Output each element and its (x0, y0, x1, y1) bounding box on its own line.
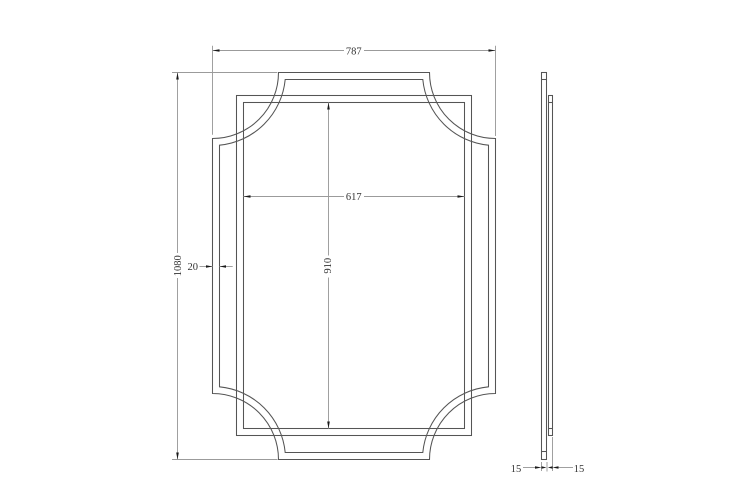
svg-text:20: 20 (188, 262, 199, 273)
svg-text:15: 15 (511, 464, 522, 475)
svg-text:15: 15 (574, 464, 585, 475)
svg-text:617: 617 (346, 192, 362, 203)
svg-text:1080: 1080 (173, 255, 184, 276)
svg-text:910: 910 (323, 258, 334, 274)
svg-text:787: 787 (346, 47, 362, 58)
